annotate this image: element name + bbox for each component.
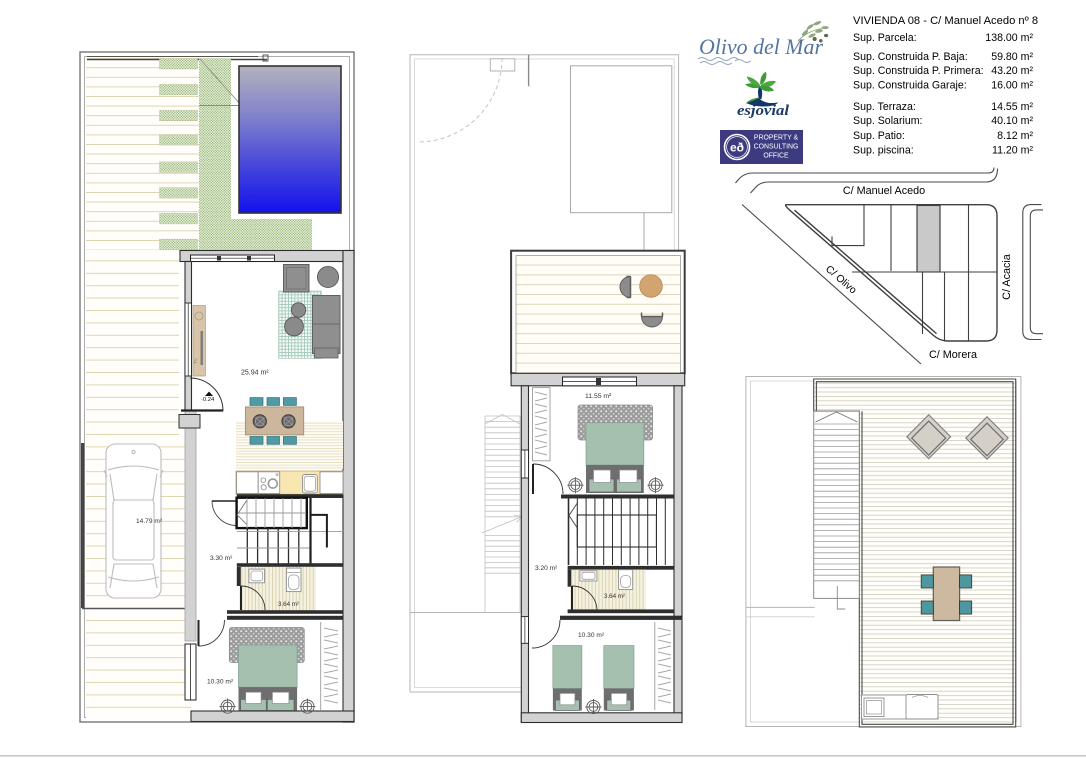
svg-text:40.10 m²: 40.10 m² (991, 115, 1033, 127)
svg-text:Sup. Terraza:: Sup. Terraza: (853, 101, 916, 113)
svg-text:8.12 m²: 8.12 m² (997, 130, 1033, 142)
svg-text:3.64 m²: 3.64 m² (604, 593, 625, 600)
svg-text:25.94 m²: 25.94 m² (241, 370, 269, 377)
svg-text:Sup. Parcela:: Sup. Parcela: (853, 32, 917, 44)
svg-text:OFFICE: OFFICE (763, 153, 789, 160)
svg-text:59.80 m²: 59.80 m² (991, 51, 1033, 63)
svg-text:·0.24: ·0.24 (201, 397, 215, 403)
svg-text:14.55 m²: 14.55 m² (991, 101, 1033, 113)
svg-text:Sup. Patio:: Sup. Patio: (853, 130, 905, 142)
svg-text:C/ Manuel Acedo: C/ Manuel Acedo (843, 185, 925, 197)
svg-text:Sup. Construida P. Primera:: Sup. Construida P. Primera: (853, 65, 984, 77)
svg-text:C/ Morera: C/ Morera (929, 349, 977, 361)
svg-text:Sup. Construida P. Baja:: Sup. Construida P. Baja: (853, 51, 968, 63)
svg-text:TV: TV (193, 357, 198, 364)
svg-text:esjovial: esjovial (737, 103, 790, 119)
svg-text:10.30 m²: 10.30 m² (578, 632, 605, 639)
svg-text:Sup. Solarium:: Sup. Solarium: (853, 115, 922, 127)
svg-text:3.64 m²: 3.64 m² (278, 601, 299, 608)
svg-text:Olivo del Mar: Olivo del Mar (699, 34, 823, 59)
svg-text:eð: eð (730, 141, 744, 155)
svg-text:Sup. Construida Garaje:: Sup. Construida Garaje: (853, 79, 967, 91)
svg-text:11.20 m²: 11.20 m² (992, 144, 1033, 156)
svg-text:3.30 m²: 3.30 m² (210, 555, 233, 562)
svg-text:16.00 m²: 16.00 m² (991, 79, 1033, 91)
svg-text:43.20 m²: 43.20 m² (991, 65, 1033, 77)
svg-text:3.20 m²: 3.20 m² (535, 565, 558, 572)
svg-text:PROPERTY &: PROPERTY & (754, 135, 799, 142)
svg-text:10.30 m²: 10.30 m² (207, 679, 234, 686)
svg-text:138.00 m²: 138.00 m² (985, 32, 1033, 44)
svg-text:14.79 m²: 14.79 m² (136, 518, 163, 525)
svg-text:Sup. piscina:: Sup. piscina: (853, 144, 914, 156)
svg-text:CONSULTING: CONSULTING (754, 144, 799, 151)
svg-text:11.55 m²: 11.55 m² (585, 393, 612, 400)
svg-text:C/ Acacia: C/ Acacia (1001, 254, 1013, 300)
svg-text:VIVIENDA 08 - C/ Manuel Acedo: VIVIENDA 08 - C/ Manuel Acedo nº 8 (853, 15, 1038, 27)
